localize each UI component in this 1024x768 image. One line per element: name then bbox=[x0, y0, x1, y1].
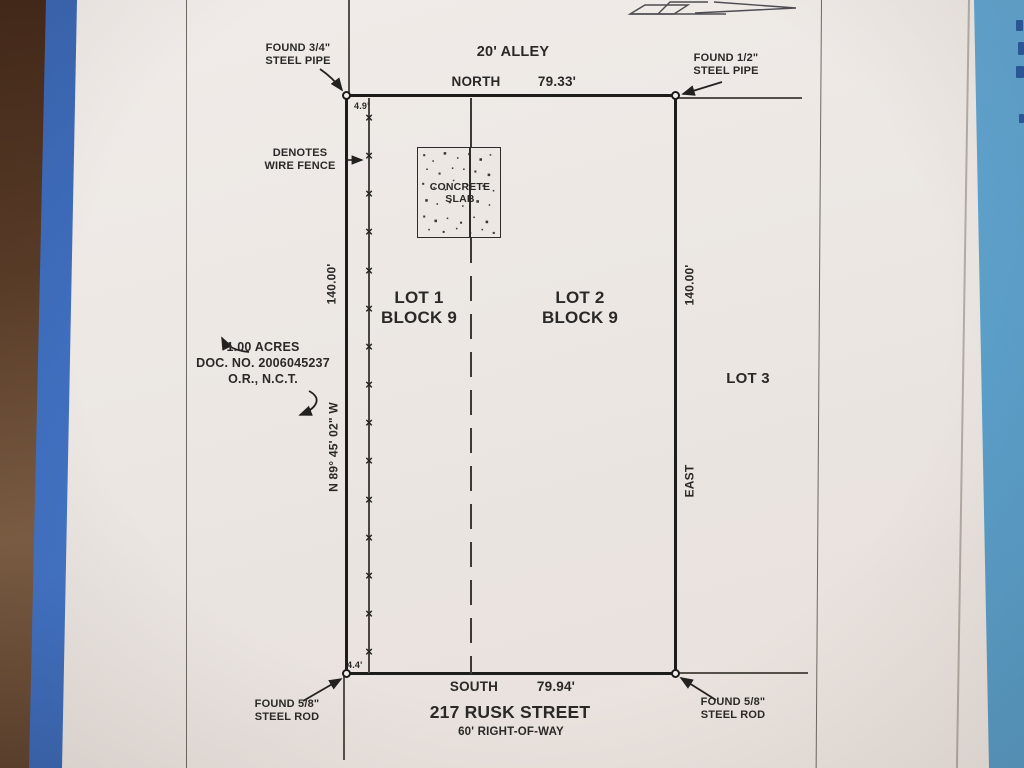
monument-label-sw: FOUND 5/8"STEEL ROD bbox=[255, 698, 320, 724]
fence-x-mark: × bbox=[362, 340, 376, 354]
street-name-label: 217 RUSK STREET bbox=[430, 706, 591, 719]
west-distance-label: 140.00' bbox=[326, 264, 339, 305]
lot-line-dashed-segment bbox=[470, 238, 472, 674]
east-distance-label: 140.00' bbox=[684, 265, 697, 306]
street-line-extension-east bbox=[677, 672, 808, 674]
corner-monument-se-icon bbox=[671, 669, 680, 678]
fence-x-mark: × bbox=[362, 111, 376, 125]
fence-x-mark: × bbox=[362, 569, 376, 583]
fence-x-mark: × bbox=[362, 493, 376, 507]
tape-print-mark bbox=[1019, 114, 1024, 123]
fence-x-mark: × bbox=[362, 378, 376, 392]
fence-offset-top-label: 4.9' bbox=[354, 100, 369, 113]
lot3-label: LOT 3 bbox=[726, 372, 770, 385]
fence-x-mark: × bbox=[362, 531, 376, 545]
alley-label: 20' ALLEY bbox=[477, 46, 549, 59]
fence-x-mark: × bbox=[362, 645, 376, 659]
alley-line-extension-north bbox=[348, 0, 350, 94]
tape-print-mark bbox=[1016, 66, 1024, 78]
east-bearing-label: EAST bbox=[684, 465, 697, 498]
fence-x-mark: × bbox=[362, 149, 376, 163]
south-distance-label: 79.94' bbox=[537, 680, 575, 693]
fence-x-mark: × bbox=[362, 264, 376, 278]
north-bearing-label: NORTH bbox=[452, 75, 501, 88]
corner-monument-nw-icon bbox=[342, 91, 351, 100]
corner-monument-ne-icon bbox=[671, 91, 680, 100]
acreage-note: 1.00 ACRES DOC. NO. 2006045237 O.R., N.C… bbox=[196, 339, 330, 387]
north-distance-label: 79.33' bbox=[538, 75, 576, 88]
fence-x-mark: × bbox=[362, 607, 376, 621]
concrete-slab: CONCRETESLAB bbox=[417, 147, 501, 238]
fence-x-mark: × bbox=[362, 454, 376, 468]
photo-of-survey-plat: ××××××××××××××× bbox=[0, 0, 1024, 768]
fence-x-mark: × bbox=[362, 302, 376, 316]
right-of-way-label: 60' RIGHT-OF-WAY bbox=[458, 726, 564, 739]
fence-x-mark: × bbox=[362, 187, 376, 201]
wire-fence-note: DENOTESWIRE FENCE bbox=[255, 147, 345, 173]
tape-print-mark bbox=[1016, 20, 1023, 31]
fence-offset-bottom-label: 4.4' bbox=[347, 659, 362, 672]
lot-line-solid-segment bbox=[470, 98, 472, 148]
fence-x-mark: × bbox=[362, 416, 376, 430]
lot1-label: LOT 1BLOCK 9 bbox=[381, 288, 457, 328]
monument-label-se: FOUND 5/8"STEEL ROD bbox=[701, 696, 766, 722]
monument-label-nw: FOUND 3/4"STEEL PIPE bbox=[265, 42, 330, 68]
tape-print-mark bbox=[1018, 42, 1024, 55]
alley-line-extension-east bbox=[677, 97, 802, 99]
street-line-extension-south bbox=[343, 676, 345, 760]
margin-line-left bbox=[186, 0, 187, 768]
fence-x-mark: × bbox=[362, 225, 376, 239]
monument-label-ne: FOUND 1/2"STEEL PIPE bbox=[693, 52, 758, 78]
south-bearing-label: SOUTH bbox=[450, 680, 498, 693]
lot2-label: LOT 2BLOCK 9 bbox=[542, 288, 618, 328]
parcel-boundary bbox=[345, 94, 677, 675]
concrete-slab-label: CONCRETESLAB bbox=[430, 181, 491, 205]
west-bearing-label: N 89° 45' 02" W bbox=[328, 402, 341, 492]
